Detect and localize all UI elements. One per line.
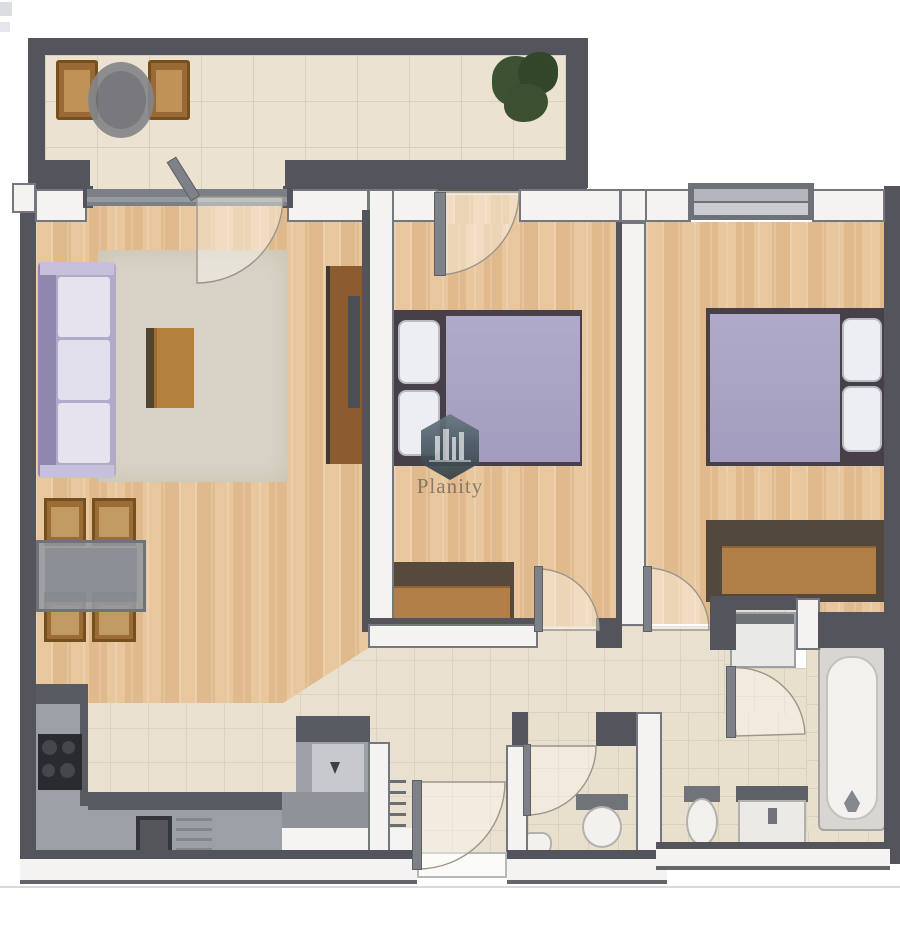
balcony-wall-bottom-band: [285, 160, 587, 191]
bathroom-door-floor: [724, 668, 806, 714]
balcony-wall-top: [28, 38, 588, 55]
tv-screen: [348, 296, 360, 408]
bathroom-nook-back-wall: [732, 596, 798, 610]
burner: [42, 764, 55, 777]
bathroom-toilet-bowl: [686, 798, 718, 846]
sofa-backrest: [38, 262, 56, 478]
balcony-sliding-door-rail: [87, 197, 287, 202]
watermark-building-bar: [435, 436, 440, 460]
bedroom1-balcony-door-leaf: [434, 192, 446, 276]
floor-plan-canvas: Planity: [0, 0, 900, 928]
bedroom2-window: [688, 183, 814, 220]
wall-bedroom1-bedroom2-shadow: [616, 222, 622, 626]
washing-machine-panel: [732, 614, 794, 624]
sofa-armrest-bottom: [40, 465, 114, 478]
washing-machine: [730, 612, 796, 668]
radiator: [390, 780, 406, 832]
balcony-chair-right: [148, 60, 190, 120]
bottom-wall-mid-edge: [507, 850, 667, 859]
exterior-wall-left: [20, 186, 36, 862]
sofa-cushion: [58, 277, 110, 337]
bedroom2-window-sill: [694, 203, 808, 215]
bottom-wall-bathroom-edge: [656, 842, 890, 849]
dining-chair-seat: [51, 507, 79, 537]
dining-chair: [92, 498, 136, 546]
watermark-building-bar: [459, 432, 464, 460]
kitchen-peninsula-lower: [282, 792, 370, 832]
balcony-wall-left: [28, 38, 45, 195]
sofa-armrest-top: [40, 262, 114, 275]
wc-bathroom-wall: [636, 712, 662, 858]
wall-bedroom1-bottom: [368, 624, 538, 648]
cooktop: [38, 734, 82, 790]
kitchen-peninsula-panel: [312, 744, 364, 792]
kitchen-peninsula-top-edge: [296, 716, 370, 742]
wall-top-bedroom1-left: [392, 189, 438, 222]
wall-top-living-right: [287, 189, 369, 222]
burner: [42, 740, 57, 755]
bathtub-head-wall: [818, 612, 884, 648]
wall-top-bedroom2-left: [645, 189, 691, 222]
bedroom2-dresser-front: [722, 546, 876, 594]
bottom-wall-mid-line: [507, 880, 667, 884]
bedroom1-pillow: [398, 320, 440, 384]
bedroom2-pillow: [842, 318, 882, 382]
watermark-ground-line: [429, 460, 471, 462]
dining-table: [36, 540, 146, 612]
bedroom2-duvet: [710, 314, 840, 462]
bathroom-door-leaf: [726, 666, 736, 738]
wc-toilet-bowl: [582, 806, 622, 848]
kitchen-counter-bottom-back-edge: [88, 792, 300, 810]
coffee-table: [154, 328, 194, 408]
balcony-chair-right-seat: [156, 70, 182, 112]
wc-door-leaf: [523, 744, 531, 816]
dining-chair: [44, 498, 86, 546]
wc-top-wall-left: [512, 712, 528, 746]
sofa-cushion: [58, 403, 110, 463]
wall-stub-bedroom1-door: [596, 618, 622, 648]
bedroom2-door-leaf: [643, 566, 652, 632]
kitchen-sink-basin-inner: [140, 820, 168, 854]
balcony-round-table-top: [96, 71, 146, 129]
bathroom-vanity: [738, 800, 806, 846]
balcony-chair-left-seat: [64, 70, 90, 112]
wall-living-bedroom1-shadow: [362, 210, 370, 632]
balcony-round-table: [88, 62, 154, 138]
watermark-building-bar: [443, 429, 449, 460]
sheet-bottom-line: [0, 886, 900, 888]
wall-top-bedroom2-right: [812, 189, 885, 222]
wall-top-partition-head: [620, 189, 647, 222]
exterior-wall-right: [884, 186, 900, 864]
burner: [62, 741, 75, 754]
burner: [60, 763, 75, 778]
bottom-wall-left-line: [20, 880, 417, 884]
dining-chair-seat: [99, 507, 129, 537]
scan-artifact: [0, 2, 12, 16]
bedroom1-balcony-threshold: [437, 190, 519, 224]
wall-top-living-left: [35, 189, 87, 222]
bedroom2-dresser: [706, 520, 892, 602]
bottom-wall-bathroom-line: [656, 866, 890, 870]
sofa-cushion: [58, 340, 110, 400]
watermark-text: Planity: [404, 474, 496, 498]
watermark-building-bar: [452, 437, 456, 460]
bathroom-vanity-faucet: [768, 808, 777, 824]
sofa: [38, 262, 116, 478]
scan-artifact: [0, 22, 10, 32]
bathroom-nook-right-wall: [796, 598, 820, 650]
bedroom1-door-leaf: [534, 566, 543, 632]
entry-door-leaf: [412, 780, 422, 870]
entry-left-wall: [368, 742, 390, 854]
bathtub-floor-strip: [806, 648, 818, 831]
bedroom2-window-glass: [694, 189, 808, 201]
wall-top-corner: [12, 183, 36, 213]
dining-table-inner: [45, 548, 137, 602]
wall-living-bedroom1: [368, 189, 394, 632]
entry-door-panel: [417, 852, 507, 878]
wall-top-bedroom1-right: [519, 189, 621, 222]
bedroom2-pillow: [842, 386, 882, 452]
bottom-wall-left-edge: [20, 850, 417, 859]
